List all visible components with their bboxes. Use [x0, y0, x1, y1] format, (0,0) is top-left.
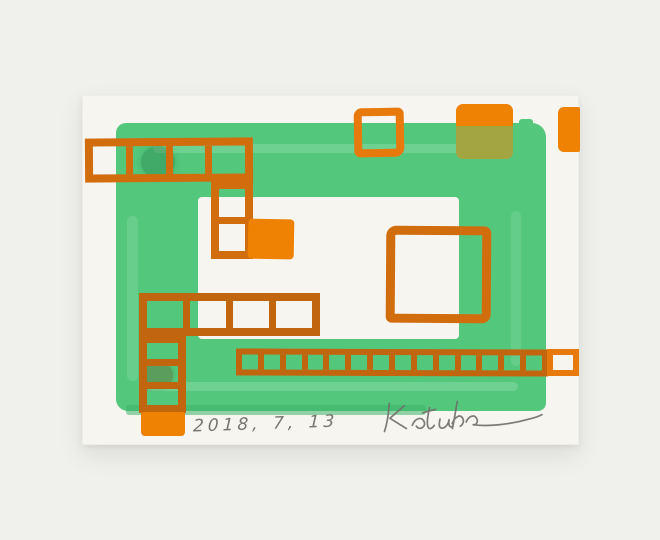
ladder-cell	[264, 355, 286, 370]
ladder-cell	[219, 189, 245, 224]
ladder-cell	[395, 355, 417, 370]
artist-signature	[377, 390, 554, 446]
signature-path	[383, 397, 542, 432]
green-paint-overlay	[456, 126, 513, 159]
ladder-cell	[147, 343, 178, 366]
brush-streak	[148, 382, 518, 391]
ladder-cell	[308, 355, 330, 370]
ladder-cell	[526, 355, 542, 370]
ladder-cell	[286, 355, 308, 370]
orange-filled-square-edge	[558, 107, 580, 152]
ladder-cell	[417, 355, 439, 370]
ladder-cell	[172, 146, 212, 174]
orange-square-outline-center	[386, 226, 492, 324]
orange-filled-square-top	[456, 104, 513, 159]
ladder-cell	[147, 301, 190, 328]
ladder-cell	[190, 301, 233, 328]
ladder-cell	[553, 355, 573, 370]
ladder-cell	[219, 224, 245, 252]
orange-filled-square-column-end	[141, 412, 185, 436]
orange-ladder-mid-left-arm	[139, 293, 320, 336]
orange-ladder-long	[236, 348, 548, 376]
ladder-cell	[504, 355, 526, 370]
ladder-cell	[147, 389, 178, 405]
ladder-cell	[329, 355, 351, 370]
ladder-cell	[351, 355, 373, 370]
ladder-cell	[93, 146, 133, 174]
orange-square-outline-top	[354, 108, 405, 158]
orange-ladder-top-left-column	[211, 181, 253, 259]
brush-bump	[519, 119, 533, 127]
orange-ladder-top-left	[85, 137, 253, 182]
ladder-cell	[242, 354, 264, 369]
ladder-cell	[147, 366, 178, 389]
orange-filled-square-small	[248, 219, 295, 260]
ladder-cell	[276, 301, 312, 328]
ladder-cell	[133, 146, 173, 174]
artwork-date: 2018, 7, 13	[193, 411, 339, 436]
photo-background: 2018, 7, 13	[0, 0, 660, 540]
ladder-cell	[439, 355, 461, 370]
orange-ladder-mid-left-column	[139, 335, 186, 413]
brush-streak	[511, 211, 521, 366]
ladder-cell	[233, 301, 276, 328]
ladder-cell	[373, 355, 395, 370]
ladder-cell	[212, 145, 245, 173]
ladder-cell	[461, 355, 483, 370]
orange-ladder-long-bright-end	[547, 349, 579, 376]
ladder-cell	[482, 355, 504, 370]
painting-card: 2018, 7, 13	[82, 95, 579, 445]
brush-streak	[127, 216, 138, 381]
